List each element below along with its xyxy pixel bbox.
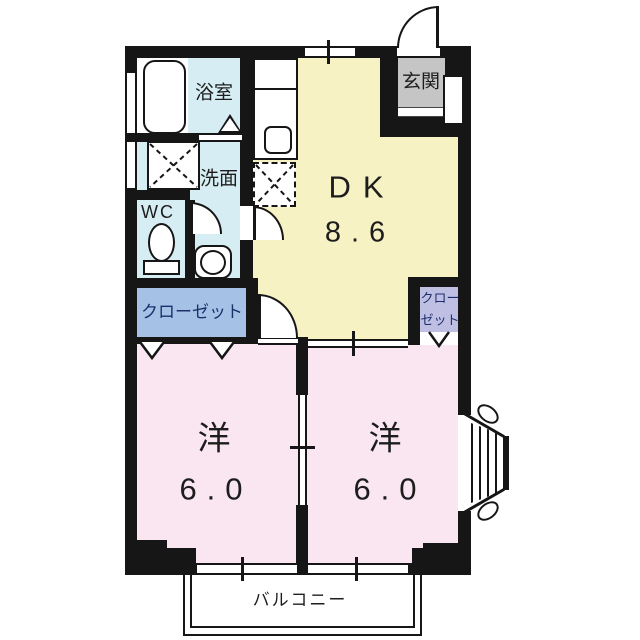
toilet-tank-icon (143, 260, 180, 275)
closet-right-label-1: クロー (420, 292, 459, 305)
wall-top-left (130, 46, 305, 58)
dk-area: 8.6 (325, 219, 395, 248)
dk-label: DK (328, 172, 395, 203)
bedroom-right-label: 洋 (369, 422, 402, 455)
window-tick (241, 557, 244, 581)
bath-label: 浴室 (195, 84, 233, 103)
wall-step-bl-2 (130, 548, 196, 572)
closet-left-label: クローゼット (141, 304, 243, 321)
washing-machine-space-icon (147, 141, 200, 190)
shoe-cabinet (443, 75, 464, 125)
bedroom-left-label: 洋 (198, 422, 231, 455)
washroom-window (125, 142, 137, 188)
bedroom-left-area: 6.0 (179, 474, 252, 505)
refrigerator-space-icon (253, 162, 296, 207)
bathtub-icon (143, 60, 186, 134)
bedroom-right-area: 6.0 (353, 474, 426, 505)
bath-door-threshold (199, 133, 242, 142)
wall-bedroom-divider-top (296, 337, 308, 395)
doorway-gap (240, 206, 253, 240)
wall-step-br-2 (412, 548, 460, 572)
wall-top-mid (355, 46, 380, 58)
wall-closetR-left (408, 277, 420, 345)
wall-bedroom-divider-bottom (296, 505, 308, 575)
bedroom-left-doorway (258, 337, 298, 345)
folding-door-chevron-icon (209, 341, 235, 361)
sliding-door-tick (290, 446, 315, 449)
dk-window (305, 46, 355, 58)
sliding-door-tick (352, 331, 355, 356)
closet-right-label-2: ゼット (420, 314, 459, 327)
sliding-door-bedrooms (298, 395, 307, 505)
folding-door-chevron-icon (428, 331, 450, 349)
floor-plan: 浴室 洗面 WC 玄関 DK 8.6 クローゼット クロー ゼット 洋 6.0 … (0, 0, 640, 640)
wall-closetL-top (125, 278, 258, 288)
kitchen-sink-icon (264, 126, 292, 154)
entrance-door-arc (397, 6, 439, 48)
wc-label: WC (141, 203, 175, 221)
toilet-icon (148, 223, 175, 262)
washroom-label: 洗面 (200, 170, 238, 189)
wall-left-3 (125, 188, 137, 575)
washbasin-icon (194, 245, 232, 279)
window-tick (327, 40, 330, 64)
wall-right-upper (458, 137, 471, 415)
wall-left-2 (125, 133, 137, 142)
kitchen-counter-icon (253, 58, 298, 160)
wall-sanitary-dk-1 (240, 52, 253, 206)
wall-closetL-right (246, 278, 258, 344)
window-tick (355, 557, 358, 581)
folding-door-chevron-icon (139, 341, 165, 361)
wall-washroom-wc (125, 190, 190, 200)
balcony-label: バルコニー (253, 592, 348, 609)
bedroom-right-window (308, 563, 408, 575)
bedroom-left-window (197, 563, 297, 575)
bay-window-icon (458, 406, 516, 520)
sliding-door-dk-bedroom-right (308, 339, 408, 348)
bath-window (125, 73, 137, 133)
entrance-label: 玄関 (402, 73, 440, 92)
entrance-step (398, 107, 445, 117)
wall-left-1 (125, 46, 137, 73)
